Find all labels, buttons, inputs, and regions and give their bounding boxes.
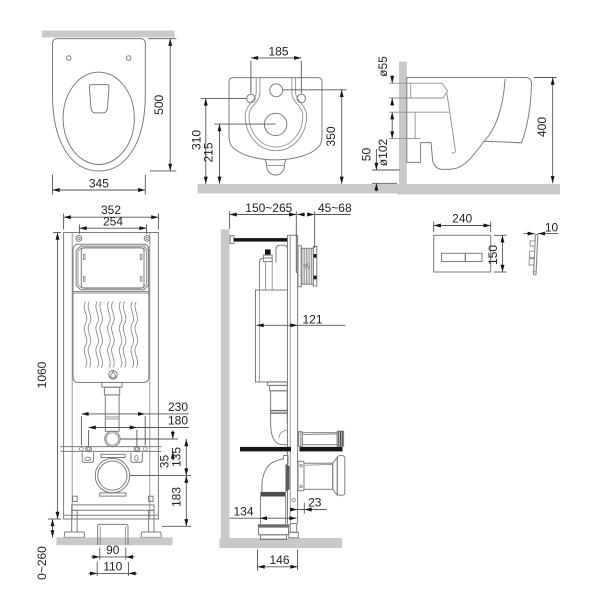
svg-text:345: 345	[89, 177, 109, 191]
svg-text:183: 183	[169, 487, 183, 507]
svg-text:50: 50	[360, 148, 374, 162]
svg-text:23: 23	[308, 496, 322, 510]
svg-text:500: 500	[152, 94, 166, 114]
svg-text:185: 185	[268, 44, 288, 58]
svg-text:1060: 1060	[35, 361, 49, 388]
svg-text:45~68: 45~68	[318, 201, 352, 215]
svg-text:215: 215	[202, 142, 216, 162]
svg-text:121: 121	[302, 313, 322, 327]
svg-text:ø102: ø102	[376, 139, 390, 167]
svg-text:135: 135	[169, 447, 183, 467]
svg-text:400: 400	[535, 117, 549, 137]
svg-text:90: 90	[106, 543, 120, 557]
svg-text:150~265: 150~265	[245, 201, 292, 215]
svg-text:0~260: 0~260	[35, 546, 49, 580]
svg-text:10: 10	[545, 220, 559, 234]
svg-text:180: 180	[168, 414, 188, 428]
svg-text:134: 134	[233, 505, 253, 519]
svg-text:240: 240	[452, 212, 472, 226]
svg-text:110: 110	[103, 560, 122, 574]
svg-text:230: 230	[168, 400, 188, 414]
svg-text:350: 350	[324, 126, 338, 146]
svg-text:150: 150	[486, 245, 500, 265]
svg-text:254: 254	[103, 215, 123, 229]
svg-text:ø55: ø55	[376, 56, 390, 77]
svg-text:146: 146	[269, 553, 289, 567]
